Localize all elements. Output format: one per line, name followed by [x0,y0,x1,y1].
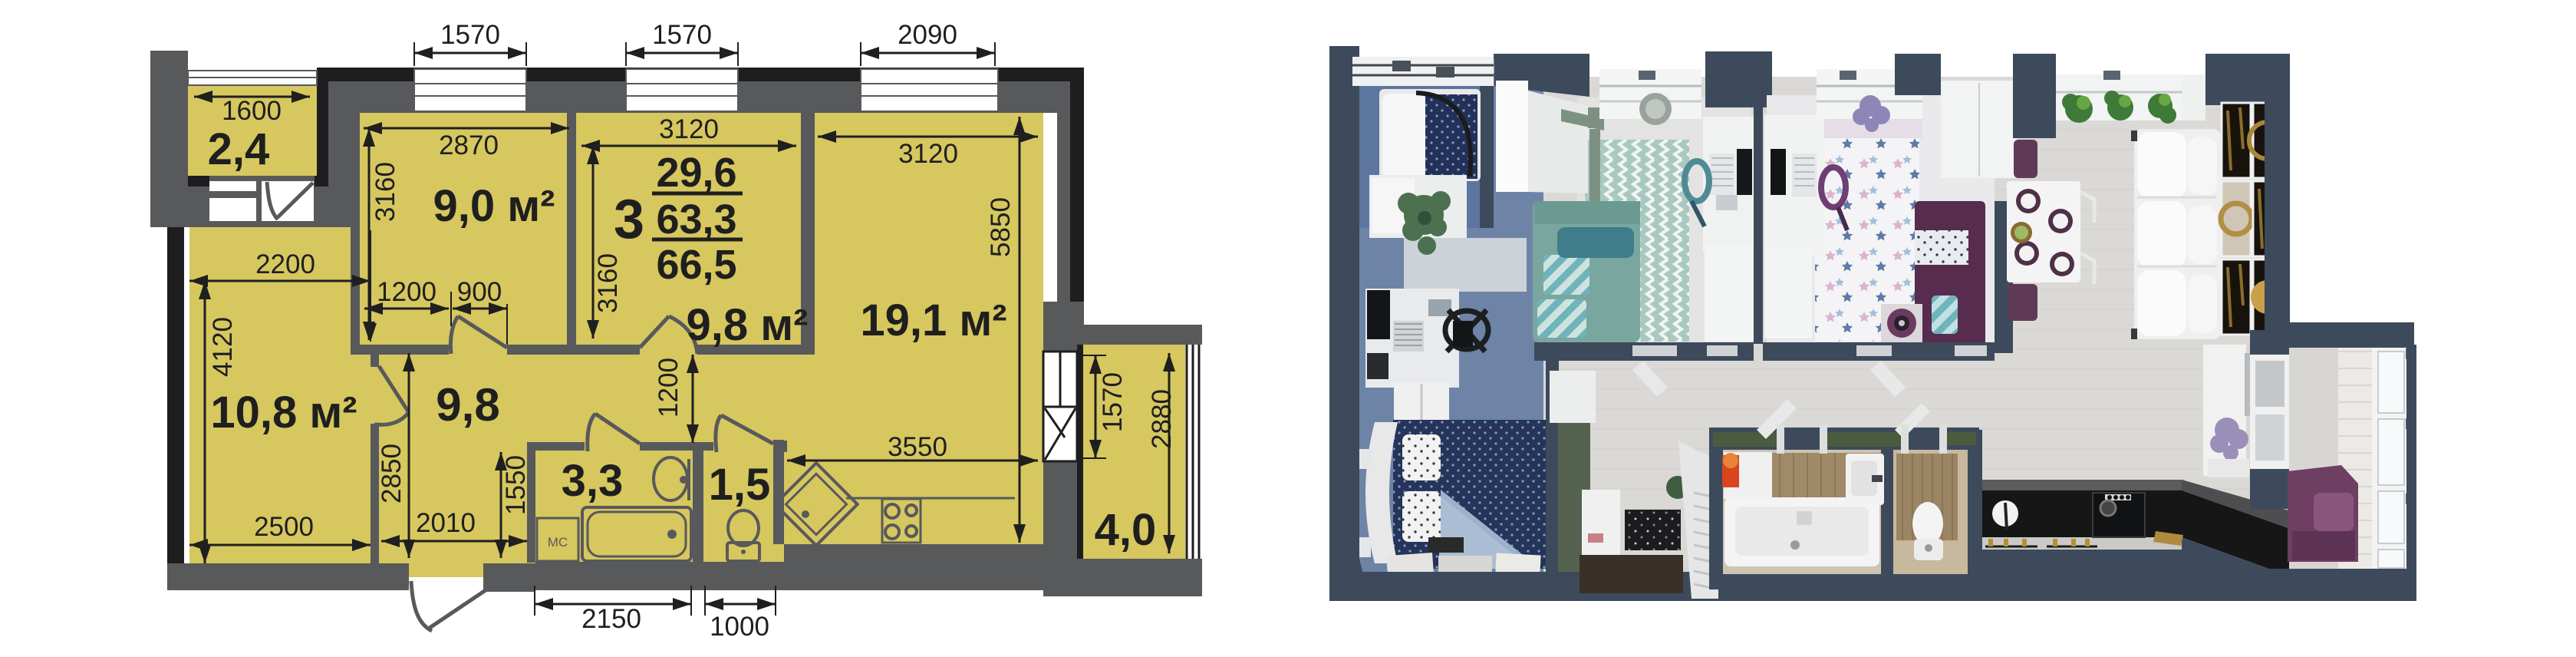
svg-text:2150: 2150 [581,604,641,634]
svg-text:3,3: 3,3 [562,456,624,506]
svg-text:9,8: 9,8 [436,379,499,431]
svg-text:3550: 3550 [888,432,947,462]
svg-text:9,0 м²: 9,0 м² [433,181,555,231]
svg-text:5850: 5850 [986,197,1016,257]
svg-text:МС: МС [548,535,568,550]
svg-text:2010: 2010 [416,508,476,538]
svg-text:3160: 3160 [593,253,623,313]
svg-text:1570: 1570 [652,20,712,50]
svg-text:2850: 2850 [377,444,407,503]
svg-text:1200: 1200 [654,358,684,418]
svg-text:2200: 2200 [255,249,315,279]
svg-text:1200: 1200 [377,277,436,307]
svg-text:2870: 2870 [439,130,499,160]
svg-text:1000: 1000 [710,612,769,642]
svg-text:1570: 1570 [1098,372,1128,432]
svg-text:3120: 3120 [659,114,719,144]
svg-text:2,4: 2,4 [208,124,270,174]
svg-text:63,3: 63,3 [656,196,736,243]
svg-text:2500: 2500 [254,512,314,542]
svg-text:19,1 м²: 19,1 м² [860,295,1006,345]
svg-text:2880: 2880 [1147,389,1177,449]
svg-text:2090: 2090 [898,20,957,50]
svg-text:1,5: 1,5 [709,460,771,510]
svg-text:29,6: 29,6 [656,150,736,196]
svg-text:3120: 3120 [898,139,958,169]
svg-text:66,5: 66,5 [656,242,736,288]
svg-text:900: 900 [457,277,502,307]
svg-text:3: 3 [614,189,644,250]
svg-text:10,8 м²: 10,8 м² [210,388,357,437]
svg-text:1550: 1550 [501,455,531,515]
svg-text:4120: 4120 [208,317,238,377]
svg-text:1600: 1600 [222,96,282,126]
svg-text:1570: 1570 [440,20,500,50]
svg-text:9,8 м²: 9,8 м² [687,300,809,350]
svg-text:3160: 3160 [371,162,400,222]
svg-text:4,0: 4,0 [1095,505,1157,555]
